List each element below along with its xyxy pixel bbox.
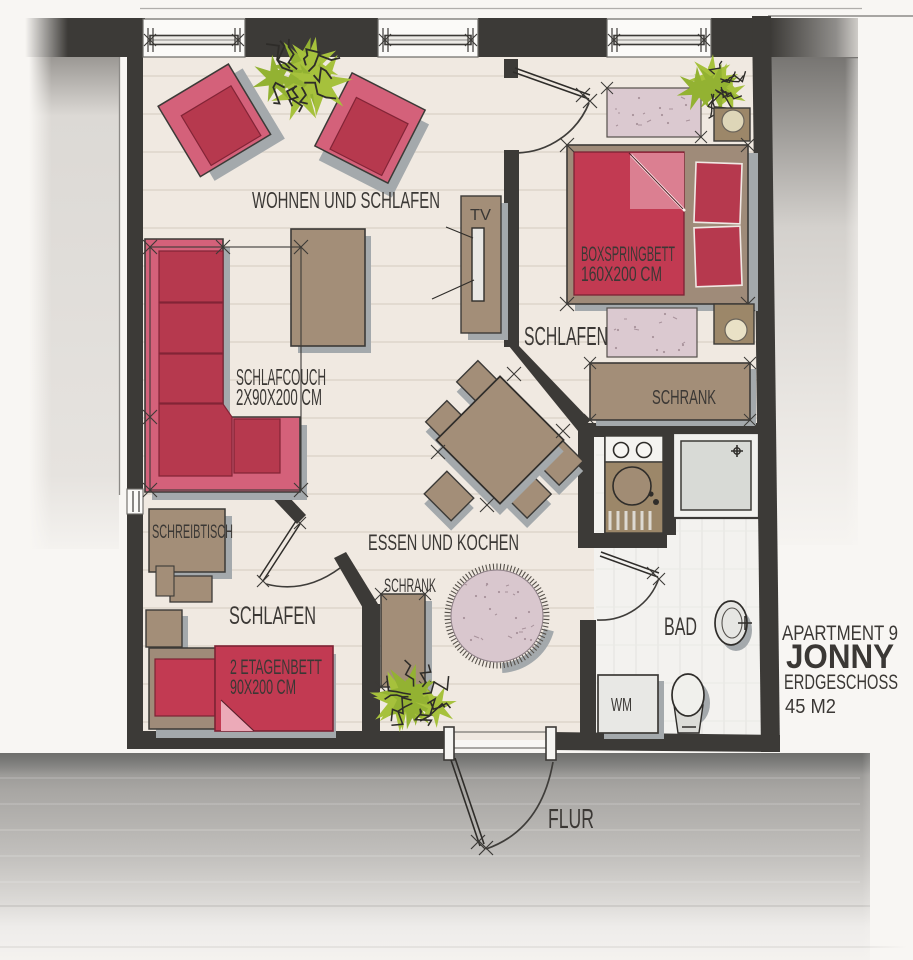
svg-text:WM: WM — [611, 695, 632, 715]
svg-text:TV: TV — [470, 207, 491, 224]
svg-text:SCHRANK: SCHRANK — [652, 387, 716, 409]
svg-text:ESSEN UND KOCHEN: ESSEN UND KOCHEN — [368, 530, 519, 555]
svg-text:90X200 CM: 90X200 CM — [230, 676, 296, 699]
svg-text:45 M2: 45 M2 — [785, 696, 836, 718]
svg-text:160X200 CM: 160X200 CM — [581, 263, 662, 286]
svg-text:SCHREIBTISCH: SCHREIBTISCH — [152, 522, 233, 543]
svg-text:SCHLAFEN: SCHLAFEN — [229, 602, 316, 630]
svg-text:SCHLAFEN: SCHLAFEN — [524, 321, 608, 351]
svg-text:WOHNEN UND SCHLAFEN: WOHNEN UND SCHLAFEN — [252, 187, 440, 213]
svg-text:2X90X200 CM: 2X90X200 CM — [236, 384, 322, 410]
svg-text:BAD: BAD — [664, 613, 697, 641]
svg-text:ERDGESCHOSS: ERDGESCHOSS — [784, 671, 898, 694]
svg-text:FLUR: FLUR — [548, 803, 594, 834]
